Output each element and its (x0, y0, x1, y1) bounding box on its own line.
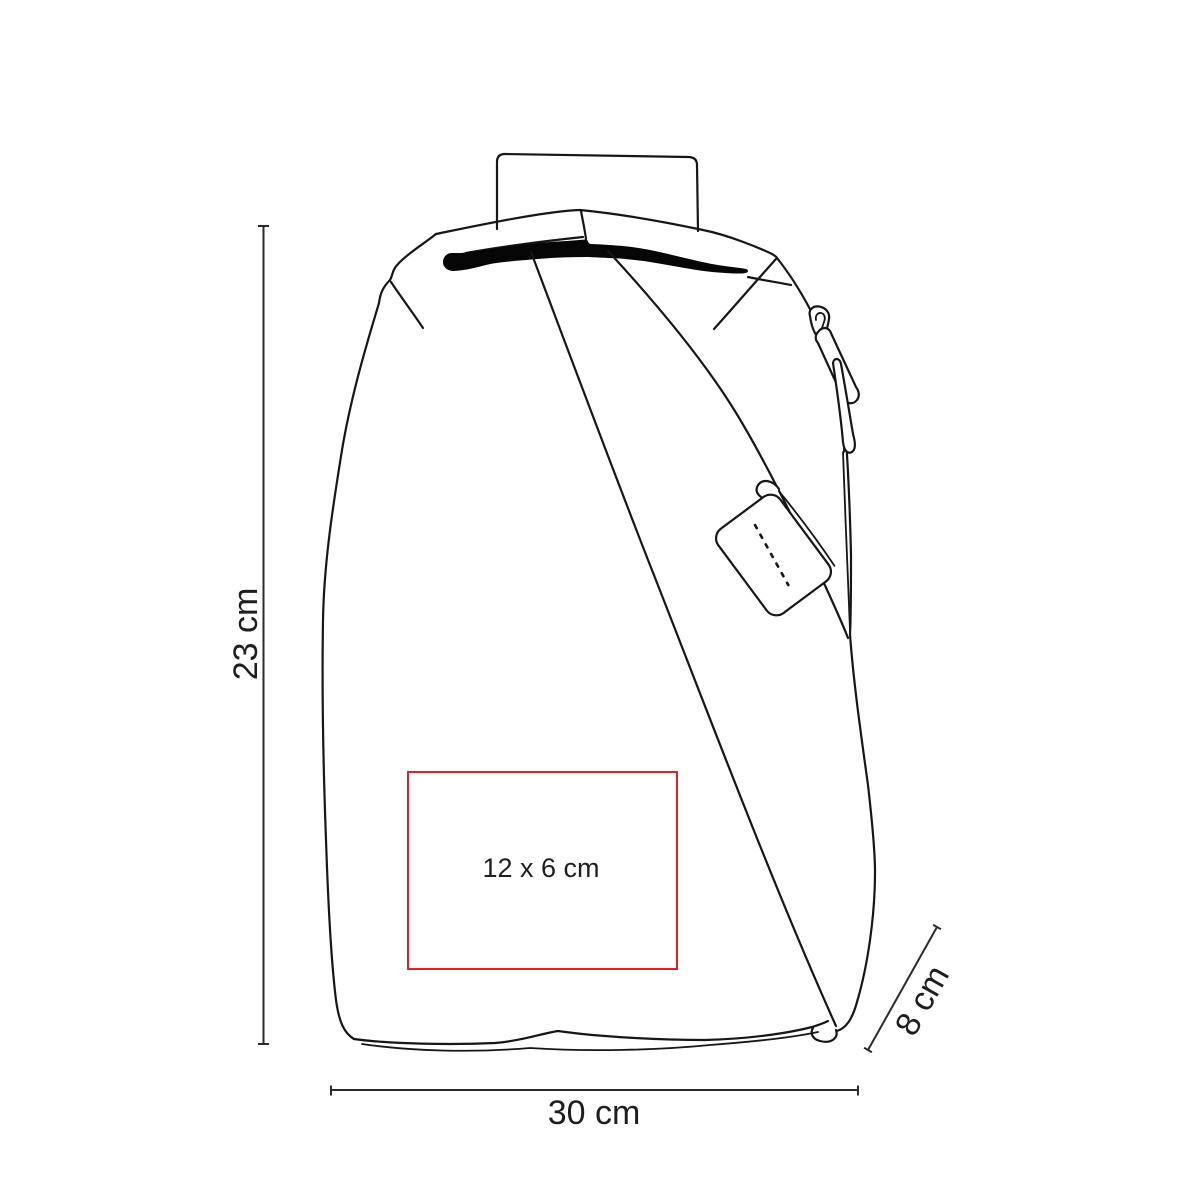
svg-text:23 cm: 23 cm (227, 588, 265, 681)
svg-text:8 cm: 8 cm (888, 959, 957, 1042)
svg-text:30 cm: 30 cm (548, 1094, 641, 1132)
svg-text:12 x 6 cm: 12 x 6 cm (482, 853, 599, 883)
